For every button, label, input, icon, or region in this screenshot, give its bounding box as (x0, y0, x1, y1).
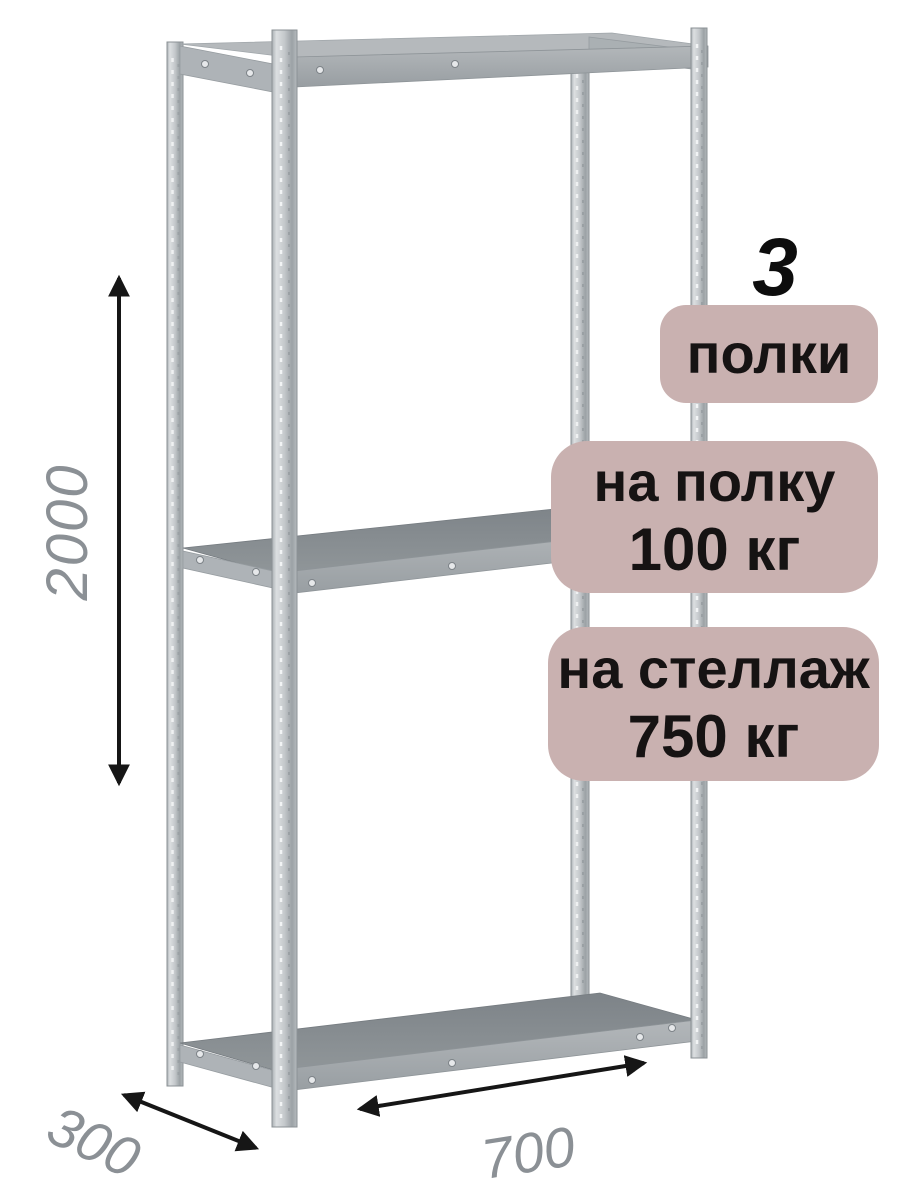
rack-load-caption: на стеллаж (557, 636, 869, 702)
shelf-top (180, 33, 708, 92)
rack-load-value: 750 кг (628, 702, 800, 772)
shelf-bottom (180, 993, 697, 1092)
post-front-left (272, 30, 297, 1127)
shelf-load-caption: на полку (594, 449, 836, 515)
shelf-count-badge: полки (660, 305, 878, 403)
rack-load-badge: на стеллаж 750 кг (548, 627, 879, 781)
shelf-load-value: 100 кг (629, 515, 801, 585)
shelf-load-badge: на полку 100 кг (551, 441, 878, 593)
depth-dimension-arrow (124, 1095, 256, 1148)
shelf-count-unit-label: полки (687, 321, 852, 387)
rack-illustration (0, 0, 900, 1200)
post-back-left (167, 42, 183, 1086)
product-image: 2000 300 700 3 полки на полку 100 кг на … (0, 0, 900, 1200)
